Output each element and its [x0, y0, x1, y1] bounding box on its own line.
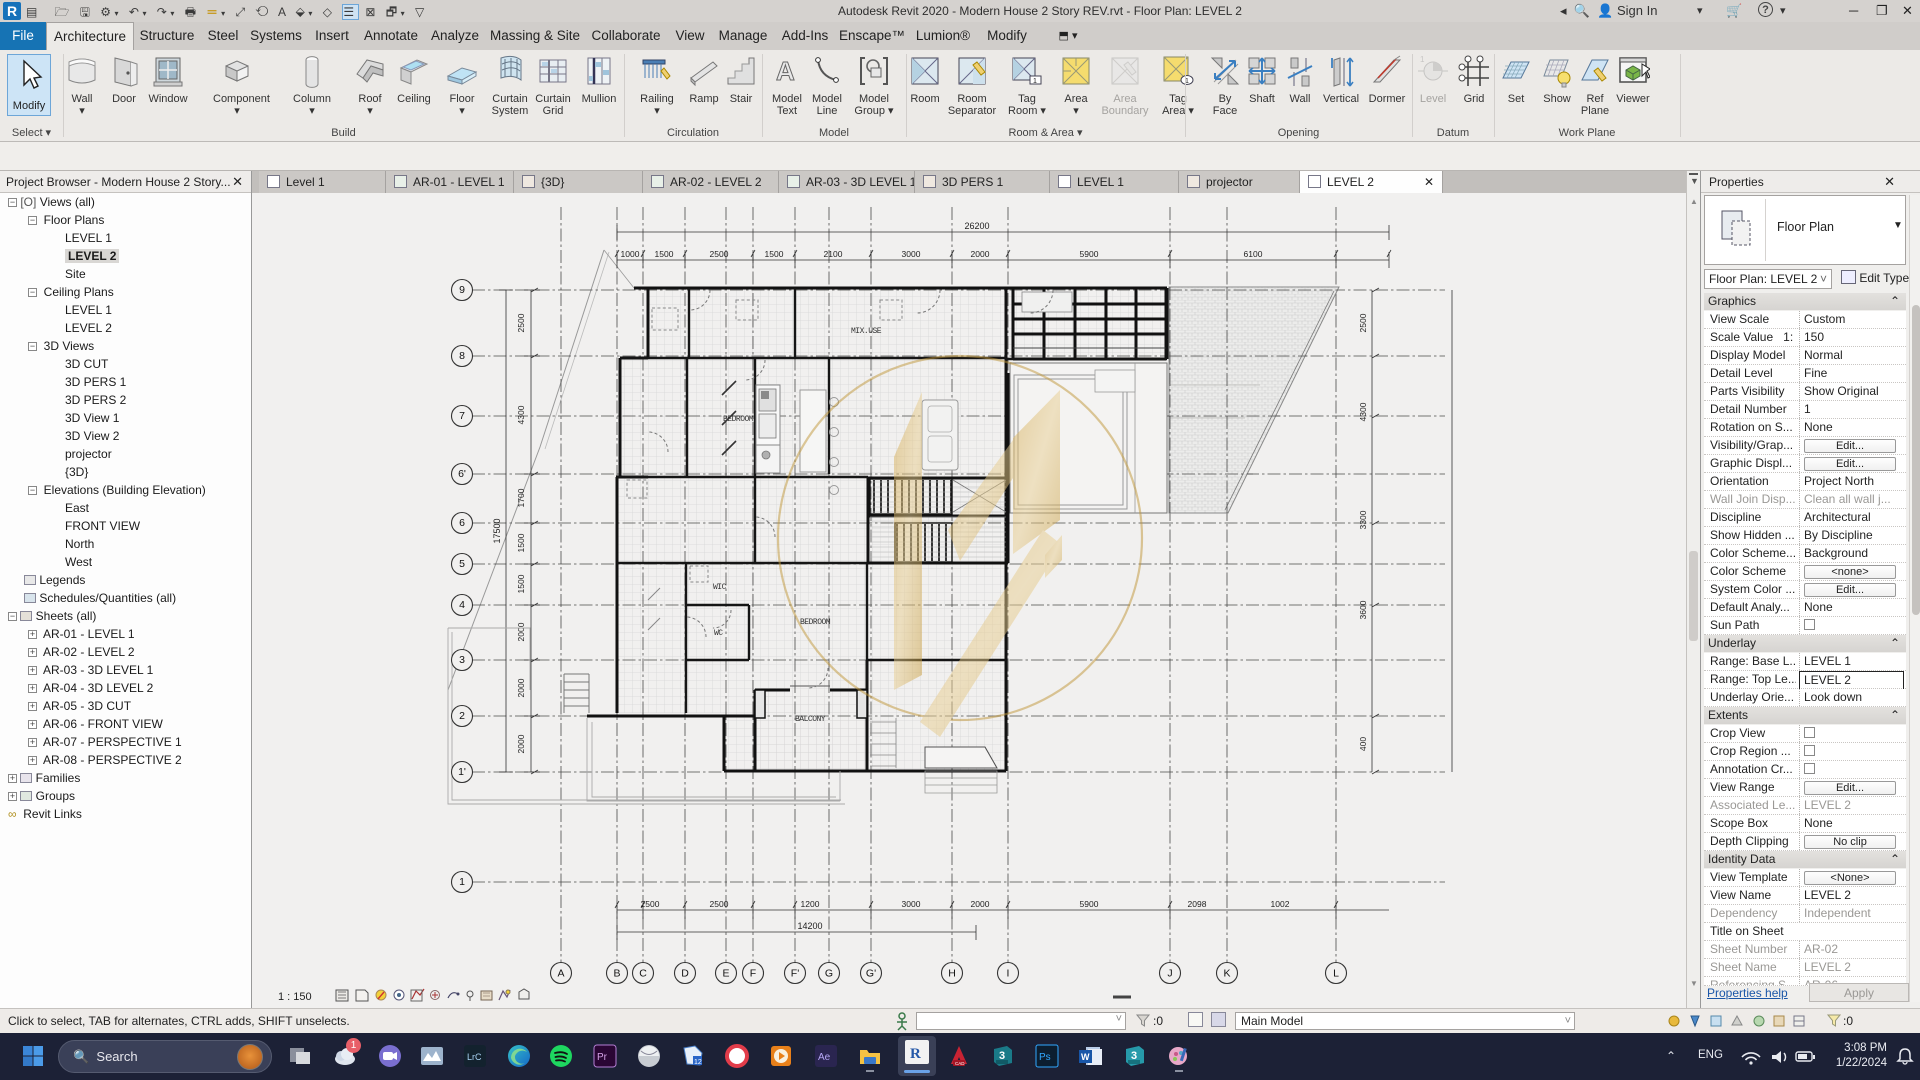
svg-text:W: W — [1081, 1052, 1090, 1062]
svg-text:8: 8 — [459, 350, 465, 362]
svg-text:3000: 3000 — [902, 899, 921, 909]
svg-text:2500: 2500 — [1358, 313, 1368, 332]
svg-text:4: 4 — [459, 599, 465, 611]
svg-text:26200: 26200 — [964, 221, 989, 231]
svg-text:Pr: Pr — [597, 1052, 608, 1063]
svg-text:400: 400 — [1358, 737, 1368, 751]
svg-text:1': 1' — [458, 766, 466, 778]
svg-text:3300: 3300 — [1358, 510, 1368, 529]
svg-text:1500: 1500 — [516, 533, 526, 552]
svg-text:Ae: Ae — [818, 1052, 831, 1063]
svg-text:D: D — [681, 968, 689, 980]
svg-text:1 : 150: 1 : 150 — [278, 991, 312, 1003]
svg-text:1: 1 — [459, 876, 465, 888]
svg-text:MIX.USE: MIX.USE — [851, 327, 882, 336]
svg-text:6100: 6100 — [1244, 249, 1263, 259]
svg-text:1500: 1500 — [765, 249, 784, 259]
svg-text:H: H — [948, 968, 956, 980]
svg-text:1: 1 — [1033, 78, 1037, 85]
svg-text:I: I — [1007, 968, 1010, 980]
svg-text:5900: 5900 — [1080, 249, 1099, 259]
svg-text:3600: 3600 — [1358, 600, 1368, 619]
svg-text:BALCONY: BALCONY — [795, 715, 826, 724]
svg-text:6: 6 — [459, 517, 465, 529]
svg-text:4300: 4300 — [1358, 402, 1368, 421]
svg-text:1200: 1200 — [801, 899, 820, 909]
svg-text:14200: 14200 — [797, 921, 822, 931]
svg-text:G': G' — [866, 968, 876, 980]
svg-text:6': 6' — [458, 468, 466, 480]
svg-text:LrC: LrC — [467, 1052, 482, 1062]
svg-text:2000: 2000 — [971, 249, 990, 259]
svg-text:Ps: Ps — [1039, 1052, 1051, 1063]
svg-text:2000: 2000 — [516, 622, 526, 641]
svg-text:A: A — [776, 56, 795, 86]
svg-text:2000: 2000 — [516, 678, 526, 697]
svg-text:1000: 1000 — [621, 249, 640, 259]
svg-text:CAD: CAD — [955, 1061, 965, 1066]
svg-text:K: K — [1223, 968, 1230, 980]
svg-text:4300: 4300 — [516, 405, 526, 424]
svg-text:2500: 2500 — [710, 899, 729, 909]
svg-text:F: F — [750, 968, 756, 980]
svg-text:BEDROOM: BEDROOM — [723, 415, 754, 424]
svg-text:2000: 2000 — [971, 899, 990, 909]
svg-text:WC: WC — [714, 629, 723, 638]
svg-text:J: J — [1167, 968, 1172, 980]
svg-text:A: A — [557, 968, 564, 980]
svg-text:2000: 2000 — [516, 734, 526, 753]
svg-text:F': F' — [791, 968, 799, 980]
svg-text:1500: 1500 — [655, 249, 674, 259]
svg-text:3000: 3000 — [902, 249, 921, 259]
svg-text:2: 2 — [459, 710, 465, 722]
svg-text:2500: 2500 — [710, 249, 729, 259]
svg-text:1500: 1500 — [516, 574, 526, 593]
svg-text:WIC: WIC — [713, 583, 727, 592]
svg-text:1: 1 — [1420, 55, 1425, 64]
svg-text:12: 12 — [694, 1059, 702, 1066]
svg-text:5: 5 — [459, 558, 465, 570]
svg-text:17500: 17500 — [492, 518, 502, 543]
svg-text:B: B — [613, 968, 620, 980]
svg-text:C: C — [639, 968, 647, 980]
svg-text:7: 7 — [459, 410, 465, 422]
svg-text:R: R — [910, 1046, 921, 1062]
svg-text:L: L — [1333, 968, 1339, 980]
svg-text:2098: 2098 — [1188, 899, 1207, 909]
svg-text:1002: 1002 — [1271, 899, 1290, 909]
svg-text:G: G — [825, 968, 833, 980]
svg-text:1700: 1700 — [516, 488, 526, 507]
svg-text:2500: 2500 — [641, 899, 660, 909]
svg-text:3: 3 — [459, 654, 465, 666]
svg-text:2500: 2500 — [516, 313, 526, 332]
svg-text:5900: 5900 — [1080, 899, 1099, 909]
svg-text:BEDROOM: BEDROOM — [800, 618, 831, 627]
svg-text:2100: 2100 — [824, 249, 843, 259]
svg-text:9: 9 — [459, 284, 465, 296]
svg-text:E: E — [722, 968, 729, 980]
